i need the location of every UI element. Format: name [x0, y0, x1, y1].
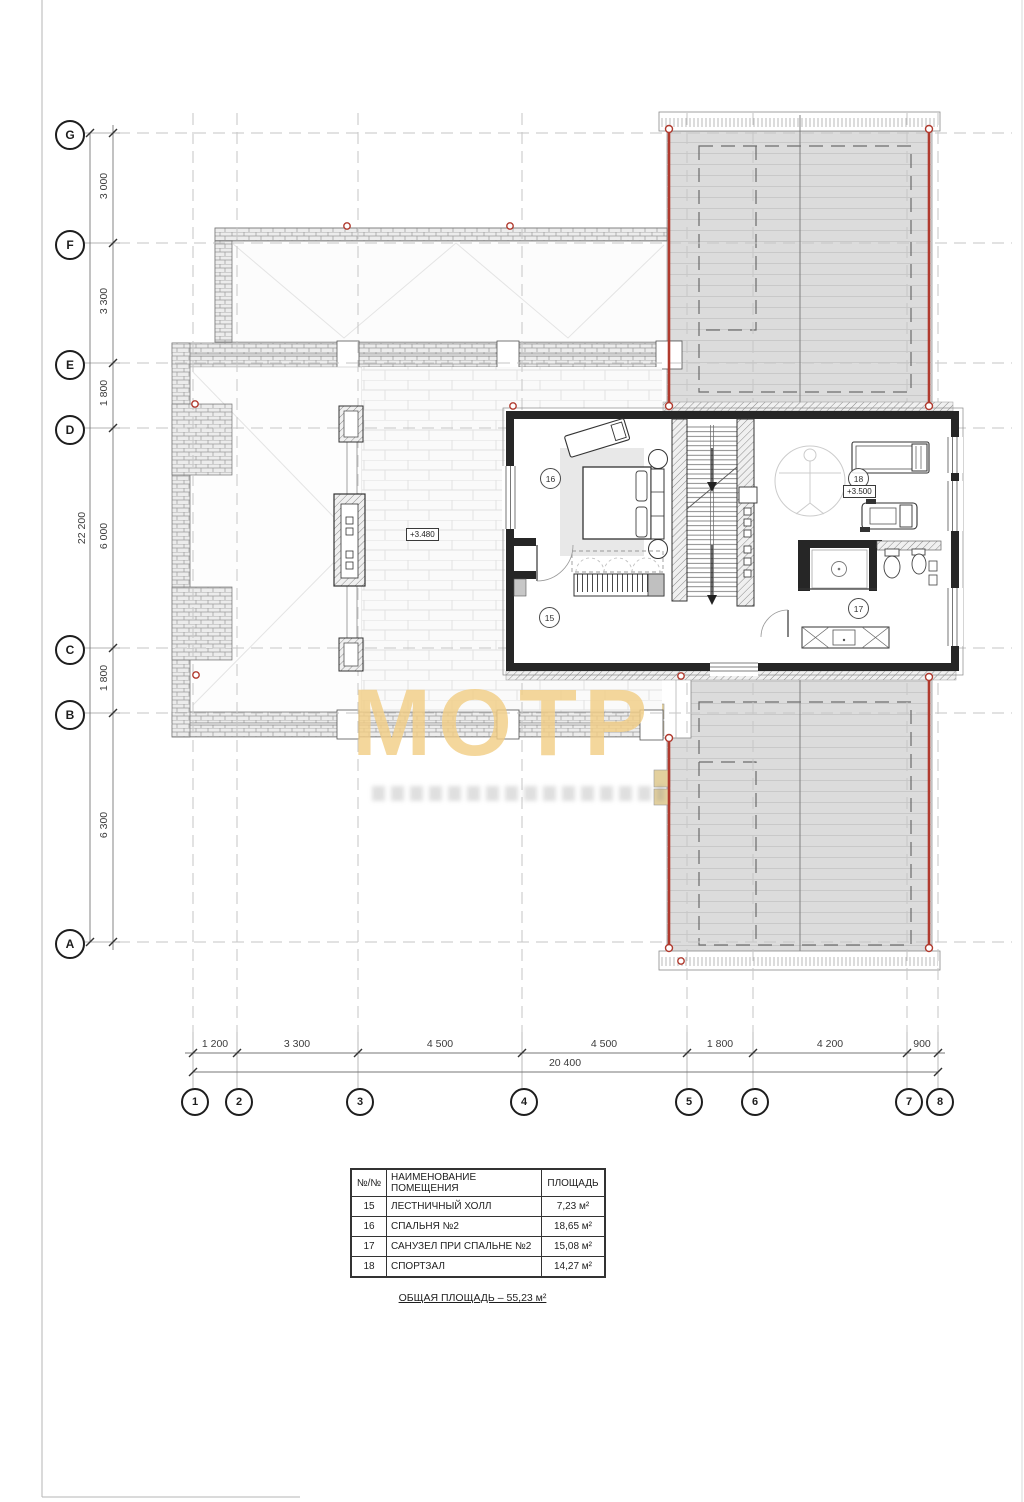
axis-bubble-6: 6: [741, 1088, 769, 1116]
axis-bubble-4: 4: [510, 1088, 538, 1116]
staircase: [672, 419, 757, 606]
axis-bubble-E: E: [55, 350, 85, 380]
legend-header-name: НАИМЕНОВАНИЕ ПОМЕЩЕНИЯ: [387, 1169, 542, 1197]
dim-B-A: 6 300: [98, 795, 110, 855]
room-num: 18: [351, 1257, 387, 1278]
main-building: [502, 402, 963, 680]
axis-bubble-C: C: [55, 635, 85, 665]
axis-bubble-A: A: [55, 929, 85, 959]
legend-header-area: ПЛОЩАДЬ: [542, 1169, 606, 1197]
legend-row: 15 ЛЕСТНИЧНЫЙ ХОЛЛ 7,23 м²: [351, 1197, 605, 1217]
axis-bubble-7: 7: [895, 1088, 923, 1116]
axis-bubble-2: 2: [225, 1088, 253, 1116]
dim-D-C: 6 000: [98, 506, 110, 566]
dim-left-total: 22 200: [76, 498, 88, 558]
dim-4-5: 4 500: [574, 1038, 634, 1050]
axis-bubble-1: 1: [181, 1088, 209, 1116]
axis-bubble-D: D: [55, 415, 85, 445]
room-area: 14,27 м²: [542, 1257, 606, 1278]
floor-plan-sheet: МОТР G F E D C B A 1 2 3 4 5 6 7 8 3 000…: [0, 0, 1024, 1502]
axis-bubble-5: 5: [675, 1088, 703, 1116]
dim-1-2: 1 200: [185, 1038, 245, 1050]
dim-7-8: 900: [892, 1038, 952, 1050]
room-area: 18,65 м²: [542, 1217, 606, 1237]
room-name: СПАЛЬНЯ №2: [387, 1217, 542, 1237]
dim-F-E: 3 300: [98, 271, 110, 331]
room-name: ЛЕСТНИЧНЫЙ ХОЛЛ: [387, 1197, 542, 1217]
dim-G-F: 3 000: [98, 156, 110, 216]
legend-header-num: №/№: [351, 1169, 387, 1197]
watermark-subtext-blur: [372, 786, 664, 801]
elevation-label-terrace: +3.480: [406, 528, 439, 541]
axis-bubble-G: G: [55, 120, 85, 150]
dim-2-3: 3 300: [267, 1038, 327, 1050]
legend-row: 18 СПОРТЗАЛ 14,27 м²: [351, 1257, 605, 1278]
room-num: 16: [351, 1217, 387, 1237]
dim-E-D: 1 800: [98, 363, 110, 423]
dim-C-B: 1 800: [98, 648, 110, 708]
axis-bubble-8: 8: [926, 1088, 954, 1116]
legend-row: 17 САНУЗЕЛ ПРИ СПАЛЬНЕ №2 15,08 м²: [351, 1237, 605, 1257]
room-area: 15,08 м²: [542, 1237, 606, 1257]
room-area: 7,23 м²: [542, 1197, 606, 1217]
dim-bottom-total: 20 400: [535, 1057, 595, 1069]
total-area-label: ОБЩАЯ ПЛОЩАДЬ – 55,23 м²: [360, 1292, 585, 1304]
elevation-label-gym: +3.500: [843, 485, 876, 498]
room-num: 15: [351, 1197, 387, 1217]
axis-bubble-F: F: [55, 230, 85, 260]
dim-5-6: 1 800: [690, 1038, 750, 1050]
legend-row: 16 СПАЛЬНЯ №2 18,65 м²: [351, 1217, 605, 1237]
room-num: 17: [351, 1237, 387, 1257]
legend-header-row: №/№ НАИМЕНОВАНИЕ ПОМЕЩЕНИЯ ПЛОЩАДЬ: [351, 1169, 605, 1197]
room-name: СПОРТЗАЛ: [387, 1257, 542, 1278]
room-name: САНУЗЕЛ ПРИ СПАЛЬНЕ №2: [387, 1237, 542, 1257]
room-mark-15: 15: [539, 607, 560, 628]
room-mark-17: 17: [848, 598, 869, 619]
dim-6-7: 4 200: [800, 1038, 860, 1050]
room-mark-16: 16: [540, 468, 561, 489]
room-legend-table: №/№ НАИМЕНОВАНИЕ ПОМЕЩЕНИЯ ПЛОЩАДЬ 15 ЛЕ…: [350, 1168, 606, 1278]
axis-bubble-3: 3: [346, 1088, 374, 1116]
dim-3-4: 4 500: [410, 1038, 470, 1050]
axis-bubble-B: B: [55, 700, 85, 730]
watermark-text: МОТР: [352, 676, 654, 771]
